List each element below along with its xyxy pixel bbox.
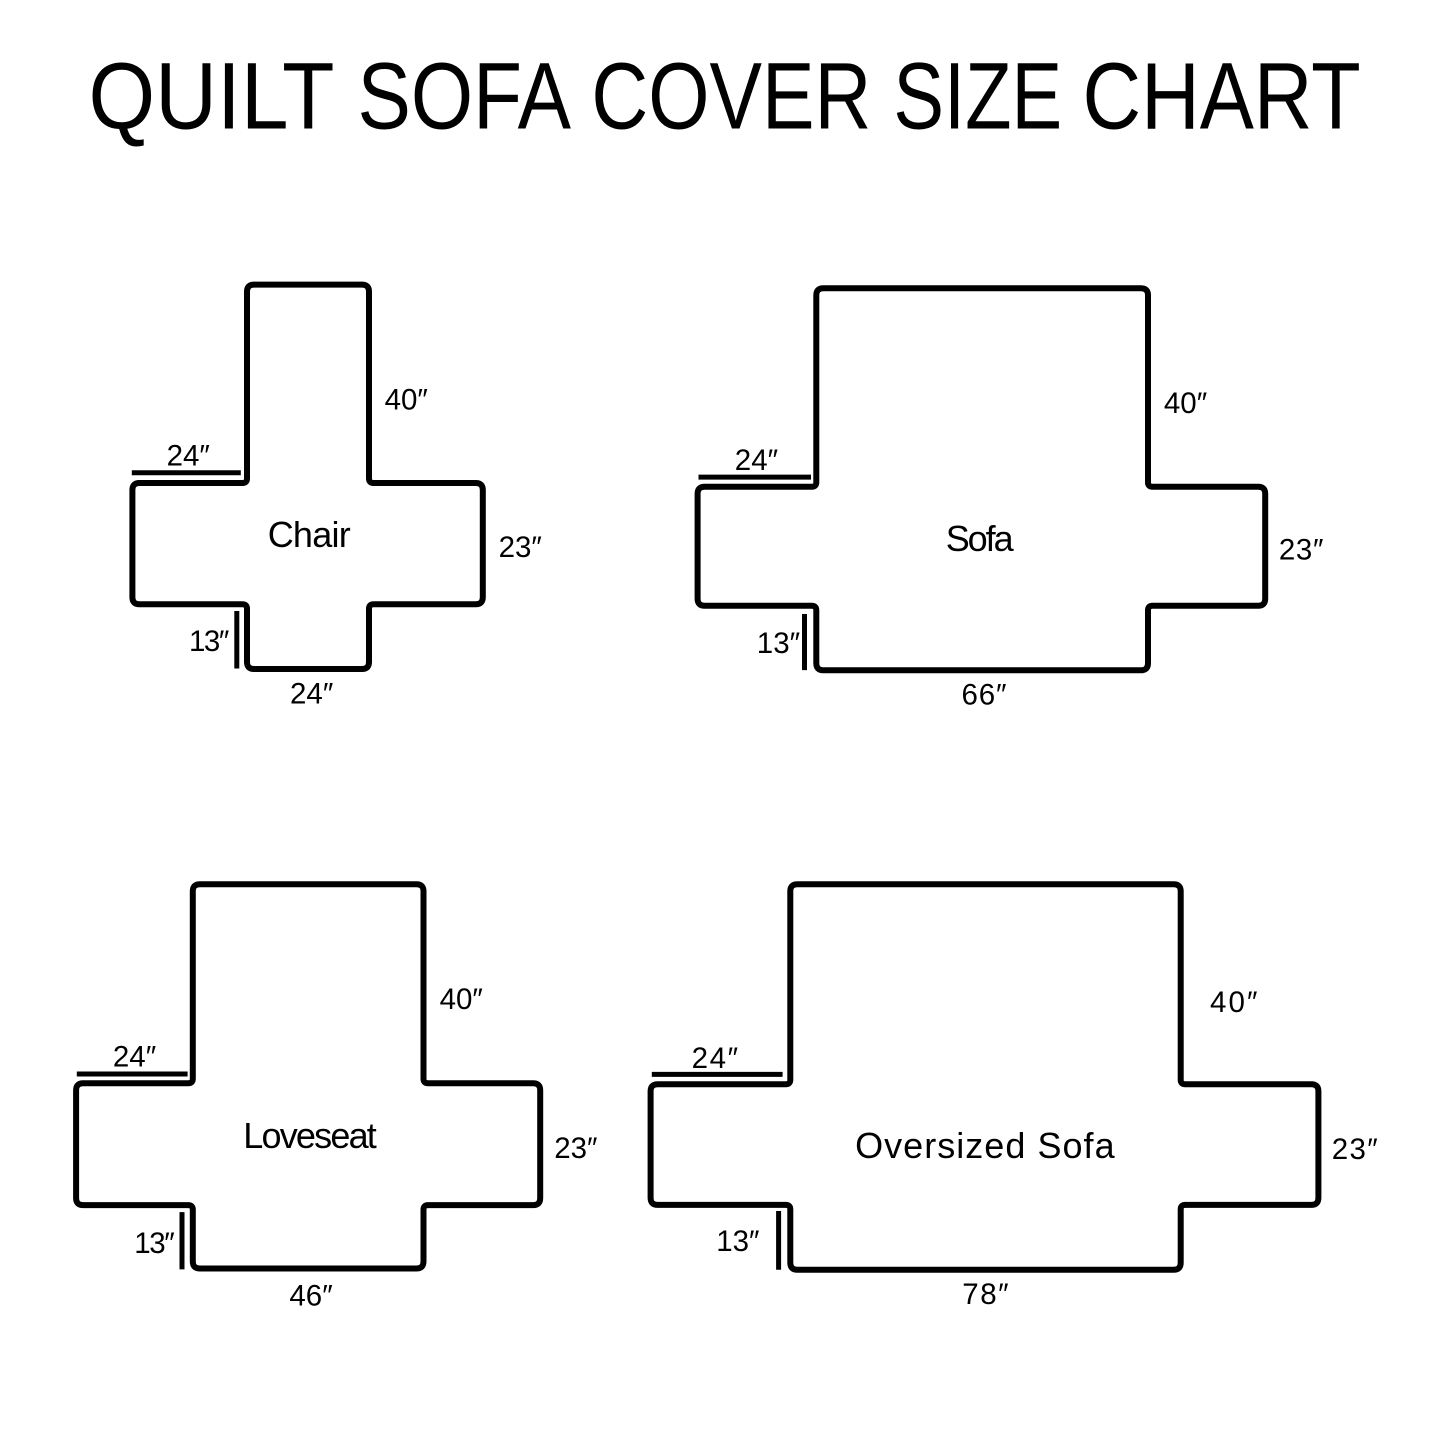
svg-text:24″: 24″ bbox=[290, 677, 333, 710]
svg-text:23″: 23″ bbox=[1332, 1133, 1378, 1166]
svg-text:13″: 13″ bbox=[757, 627, 800, 660]
svg-text:Sofa: Sofa bbox=[946, 518, 1015, 559]
svg-text:Chair: Chair bbox=[268, 514, 351, 555]
svg-text:QUILT: QUILT bbox=[89, 44, 335, 150]
svg-text:23″: 23″ bbox=[1279, 533, 1324, 566]
svg-text:78″: 78″ bbox=[962, 1278, 1008, 1311]
svg-text:24″: 24″ bbox=[692, 1042, 739, 1075]
svg-text:13″: 13″ bbox=[189, 625, 229, 658]
svg-text:24″: 24″ bbox=[113, 1040, 156, 1073]
svg-text:24″: 24″ bbox=[167, 439, 210, 472]
svg-text:66″: 66″ bbox=[962, 679, 1007, 712]
svg-text:CHART: CHART bbox=[1083, 44, 1361, 150]
svg-text:COVER: COVER bbox=[591, 44, 871, 150]
svg-text:SOFA: SOFA bbox=[358, 44, 572, 150]
svg-text:Oversized Sofa: Oversized Sofa bbox=[855, 1125, 1115, 1166]
svg-text:Loveseat: Loveseat bbox=[243, 1115, 376, 1156]
svg-text:40″: 40″ bbox=[385, 384, 428, 417]
svg-text:40″: 40″ bbox=[1164, 387, 1207, 420]
svg-text:46″: 46″ bbox=[289, 1280, 332, 1313]
svg-text:13″: 13″ bbox=[716, 1225, 759, 1258]
svg-text:40″: 40″ bbox=[1210, 986, 1258, 1019]
svg-text:23″: 23″ bbox=[499, 531, 542, 564]
svg-text:40″: 40″ bbox=[440, 983, 483, 1016]
svg-text:23″: 23″ bbox=[554, 1132, 597, 1165]
svg-text:24″: 24″ bbox=[735, 444, 778, 477]
svg-text:SIZE: SIZE bbox=[893, 44, 1062, 150]
svg-text:13″: 13″ bbox=[134, 1227, 175, 1260]
